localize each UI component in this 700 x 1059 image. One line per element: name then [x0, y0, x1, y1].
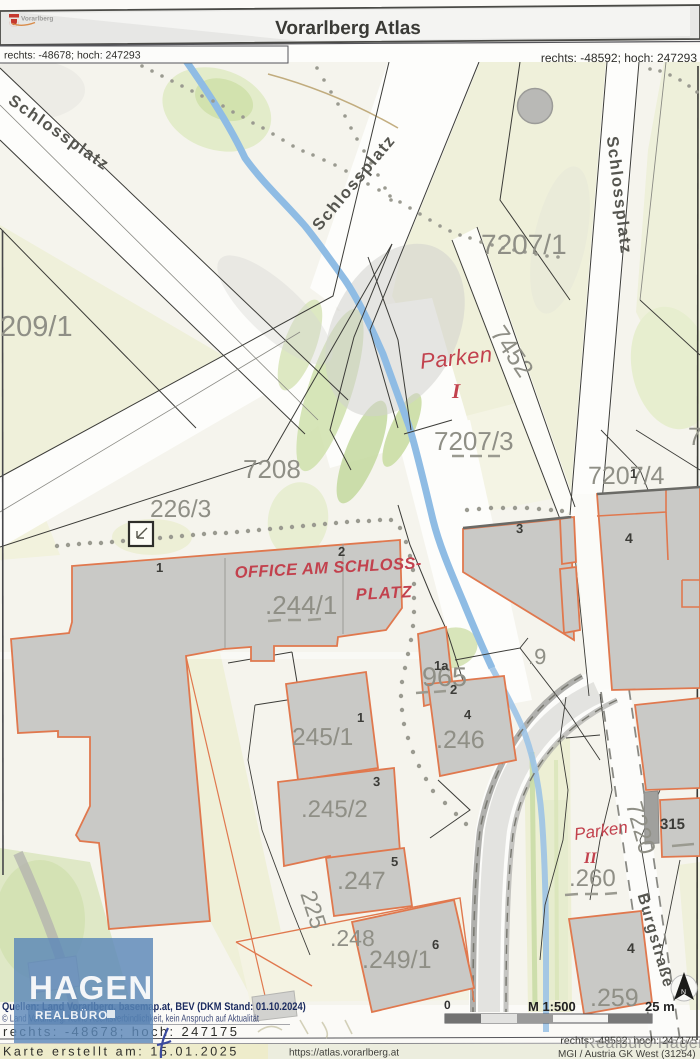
svg-text:2: 2: [338, 544, 345, 559]
svg-text:315: 315: [660, 816, 685, 833]
svg-text:4: 4: [464, 707, 472, 722]
svg-text:HAGEN: HAGEN: [29, 969, 153, 1006]
svg-text:rechts: -48592; hoch: 247293: rechts: -48592; hoch: 247293: [541, 51, 697, 65]
svg-text:7207/4: 7207/4: [588, 462, 665, 490]
svg-text:1: 1: [156, 560, 163, 575]
svg-text:209/1: 209/1: [0, 311, 73, 343]
svg-text:Realbüro Hagen: Realbüro Hagen: [584, 1035, 700, 1052]
svg-text:1: 1: [357, 710, 364, 725]
svg-text:Vorarlberg: Vorarlberg: [21, 16, 53, 23]
svg-text:N: N: [681, 989, 686, 996]
svg-text:1: 1: [630, 466, 637, 481]
svg-text:2: 2: [450, 682, 457, 697]
svg-text:.9: .9: [528, 644, 546, 669]
svg-text:.245/2: .245/2: [301, 796, 368, 823]
svg-text:PLATZ: PLATZ: [355, 583, 413, 604]
svg-text:7208: 7208: [243, 454, 301, 484]
svg-text:7: 7: [688, 423, 700, 451]
svg-text:0: 0: [444, 998, 451, 1012]
svg-text:.244/1: .244/1: [265, 590, 337, 620]
svg-text:4: 4: [625, 530, 633, 546]
svg-text:3: 3: [516, 521, 523, 536]
svg-text:.246: .246: [436, 726, 485, 754]
svg-text:II: II: [583, 850, 597, 867]
svg-text:Vorarlberg Atlas: Vorarlberg Atlas: [275, 18, 421, 39]
svg-text:3: 3: [373, 774, 380, 789]
svg-text:7207/3: 7207/3: [434, 426, 514, 456]
svg-text:rechts: -48678; hoch: 247293: rechts: -48678; hoch: 247293: [4, 50, 141, 62]
svg-text:4: 4: [627, 940, 635, 956]
svg-text:.249/1: .249/1: [362, 946, 432, 974]
svg-text:226/3: 226/3: [150, 496, 211, 523]
svg-text:Karte erstellt am: 15.01.2025: Karte erstellt am: 15.01.2025: [3, 1045, 239, 1059]
svg-text:1a: 1a: [434, 658, 449, 673]
svg-text:7207/1: 7207/1: [481, 229, 567, 260]
svg-text:245/1: 245/1: [292, 724, 353, 751]
svg-text:M 1:500: M 1:500: [528, 999, 576, 1014]
svg-text:https://atlas.vorarlberg.at: https://atlas.vorarlberg.at: [289, 1048, 399, 1059]
svg-text:.259: .259: [590, 984, 639, 1012]
svg-text:I: I: [451, 379, 461, 403]
svg-text:5: 5: [391, 854, 398, 869]
svg-text:6: 6: [432, 937, 439, 952]
svg-text:REALBÜRO: REALBÜRO: [35, 1009, 108, 1022]
svg-text:.247: .247: [337, 867, 386, 895]
svg-text:.260: .260: [569, 865, 616, 892]
svg-text:25 m: 25 m: [645, 999, 675, 1014]
